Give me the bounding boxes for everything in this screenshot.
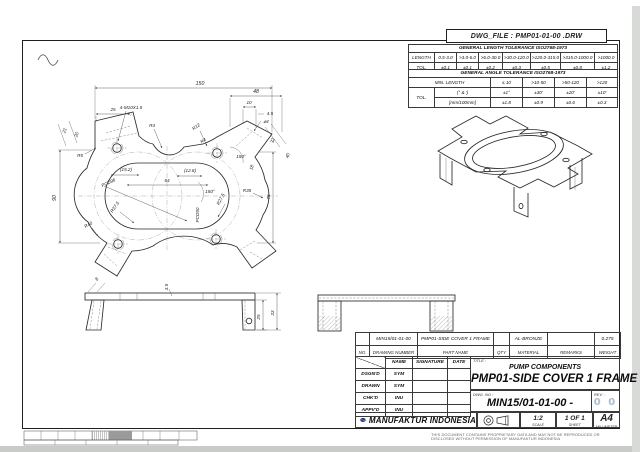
drawing-number-value: MIN15/01-01-00 [370,333,418,346]
dim-height-90: 90 [52,195,58,201]
front-right-leg [242,300,255,330]
scale-value: 1:2 [521,415,556,422]
qty-value [494,333,510,346]
deg-value: ±20' [555,88,587,98]
plan-view: 150 48 10 4.5 ⌀4 25 21 20 R5 4-M10X1.5 R… [52,81,291,276]
role-name: SYM [386,369,413,381]
signature-cell [413,381,448,393]
company-logo [360,414,366,426]
deg-value: ±1° [491,88,523,98]
dim-front-3-5: 3.5 [164,283,169,290]
angle-range: >120 [587,78,618,88]
dim-front-33: 33 [270,310,275,316]
project-name: PUMP COMPONENTS [471,364,619,371]
size-cell: A4 MILLIMETER [593,412,620,428]
sheet-cell: 1 OF 1 SHEET [556,412,593,428]
dim-pcd96: PCD96 [101,177,117,188]
length-range: >120.0-315.0 [531,53,561,63]
angle-tol-title: GENERAL ANGLE TOLERANCE ISO2768-1973 [409,70,618,78]
drawing-title: PMP01-SIDE COVER 1 FRAME [471,373,619,385]
length-tol-title: GENERAL LENGTH TOLERANCE ISO2768-1973 [409,45,618,53]
size-label: MILLIMETER [594,425,619,429]
front-plate-ticks [120,293,215,300]
dim-10: 10 [246,100,252,105]
dim-r40: R40 [83,220,93,229]
signature-table: NAME SIGNATURE DATE DSGN'D SYM DRAWN SYM… [355,356,471,417]
length-range: >6.0-30.0 [479,53,503,63]
signature-cell [413,393,448,405]
dim-40: 40 [284,152,290,159]
role-name: SYM [386,381,413,393]
projection-symbol-cell [477,412,520,428]
dim-r5: R5 [77,153,83,158]
role-label: DSGN'D [356,369,386,381]
part-name-value: PMP01-SIDE COVER 1 FRAME [418,333,494,346]
dim-r35: R35 [243,188,252,193]
role-label: CHK'D [356,393,386,405]
rev-box: REV. : 0 0 [591,391,619,411]
mm-unit-label: [mm/100mm] [435,98,491,108]
iso-top-face [438,116,592,188]
side-right-leg-hatch [431,316,452,330]
dim-angle-150-center: 150° [205,189,215,194]
signature-cell [413,369,448,381]
scale-bar [24,431,197,445]
deg-value: ±30' [523,88,555,98]
projection-angle-icon [482,414,514,427]
mm-value: ±0.9 [523,98,555,108]
dim-front-8: 8 [94,276,100,281]
dim-4-5: 4.5 [267,111,274,116]
dim-overall-width: 150 [196,81,205,87]
iso-opening-outer [461,123,567,182]
material-value: AL-BRONZE [510,333,548,346]
name-header: NAME [386,357,413,369]
iso-front-leg-hole [519,203,523,208]
angle-range: >10-50 [523,78,555,88]
angle-tolerance-table: GENERAL ANGLE TOLERANCE ISO2768-1973 MIN… [408,69,618,108]
part-no-value [356,333,370,346]
dim-64: 64 [164,178,170,183]
company-name: MANUFAKTUR INDONESIA [369,416,476,425]
scale-label: SCALE [521,423,556,427]
title-label: TITLE : [473,358,486,363]
dwg-file-box: DWG_FILE : PMP01-01-00 .DRW [446,29,607,43]
front-view: 8 3.5 25 33 [85,276,281,330]
angle-header: MIN. LENGTH [409,78,491,88]
date-header: DATE [448,357,471,369]
dim-thread-callout: 4-M10X1.5 [120,105,143,110]
side-view [318,295,455,331]
sheet-label: SHEET [557,423,592,427]
dim-r4-lug: R4 [199,137,207,145]
dim-angle-150-right: 150° [236,154,246,159]
length-header: LENGTH [409,53,435,63]
dim-48: 48 [253,89,259,95]
proprietary-note: THIS DOCUMENT CONTAINS PROPRIETARY DATA … [431,433,621,441]
dim-pcd90: PCD90 [195,207,200,222]
angle-range: ≤ 10 [491,78,523,88]
dwg-no-area: DWG. NO : MIN15/01-01-00 - REV. : 0 0 [470,390,620,412]
dim-75: 75 [266,194,271,200]
dim-25: 25 [109,107,116,112]
iso-bolt-holes [461,132,569,171]
rev-value: 0 0 [592,397,619,408]
dim-21: 21 [61,127,68,135]
title-area: TITLE : PUMP COMPONENTS PMP01-SIDE COVER… [470,356,620,390]
mm-value: ±0.3 [587,98,618,108]
dim-ref-15-2: (15.2) [120,167,132,172]
plan-dimensions: 150 48 10 4.5 ⌀4 25 21 20 R5 4-M10X1.5 R… [52,81,291,243]
centerlines [78,146,278,250]
dim-r27-5: R27.5 [216,192,226,206]
plan-outline [74,112,276,276]
deg-value: ±10' [587,88,618,98]
mm-value: ±1.8 [491,98,523,108]
dim-r12: R12 [191,122,201,131]
dim-ref-12-8: (12.8) [184,168,196,173]
dim-32: 32 [269,137,275,144]
scale-cell: 1:2 SCALE [520,412,557,428]
iso-front-leg [514,187,528,217]
dim-hole-4: ⌀4 [263,119,269,124]
mm-value: ±0.6 [555,98,587,108]
iso-right-leg [570,158,582,189]
title-block-bottom-row: MANUFAKTUR INDONESIA 1:2 SCALE 1 OF 1 SH… [355,412,620,428]
tol-label: TOL. [409,88,435,108]
parts-list-table: MIN15/01-01-00 PMP01-SIDE COVER 1 FRAME … [355,332,621,359]
length-range: >3.0-6.0 [457,53,479,63]
weight-value: 0.275 [595,333,621,346]
dim-r4-top: R4 [149,123,155,128]
signature-corner-cell [356,357,386,369]
dim-r37-5: R37.5 [109,200,120,213]
deg-unit-label: (° & ') [435,88,491,98]
iso-opening-inner [470,130,558,174]
role-label: DRAWN [356,381,386,393]
front-left-leg [86,300,104,330]
front-plate [85,293,255,300]
role-name: INU [386,393,413,405]
company-cell: MANUFAKTUR INDONESIA [355,412,477,428]
size-value: A4 [594,413,619,424]
dwg-no-value: MIN15/01-01-00 - [471,397,589,409]
remarks-value [548,333,595,346]
length-range: >30.0-120.0 [503,53,531,63]
front-leg-hole [246,318,252,324]
angle-range: >50-120 [555,78,587,88]
sheet-value: 1 OF 1 [557,415,592,422]
revision-squiggle-mark [38,55,58,66]
isometric-view [438,116,592,217]
dim-20: 20 [73,131,80,139]
length-range: >315.0-1000.0 [561,53,595,63]
dim-front-25: 25 [256,314,261,321]
date-cell [448,393,471,405]
date-cell [448,381,471,393]
side-left-leg-hatch [319,316,340,330]
dim-18: 18 [248,164,254,171]
length-range: 0.5-3.0 [435,53,457,63]
length-range: >1000.0 [595,53,618,63]
date-cell [448,369,471,381]
signature-header: SIGNATURE [413,357,448,369]
